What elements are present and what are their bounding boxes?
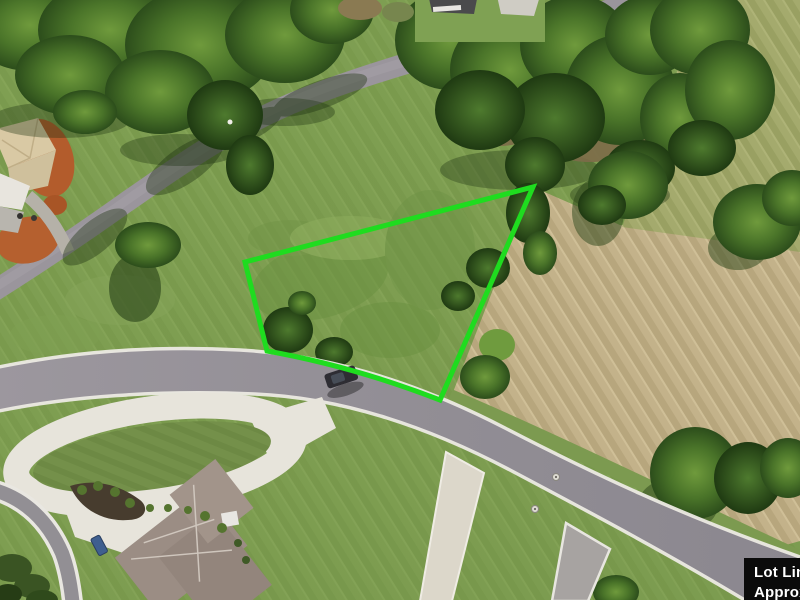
disclaimer-line-2: Approx <box>754 583 800 600</box>
aerial-photo: Lot Lin Approx <box>0 0 800 600</box>
mailbox <box>228 120 233 125</box>
lot-lines-disclaimer-badge: Lot Lin Approx <box>744 558 800 600</box>
disclaimer-line-1: Lot Lin <box>754 563 800 583</box>
neighbor-driveway-top <box>497 0 540 16</box>
aerial-photo-canvas <box>0 0 800 600</box>
